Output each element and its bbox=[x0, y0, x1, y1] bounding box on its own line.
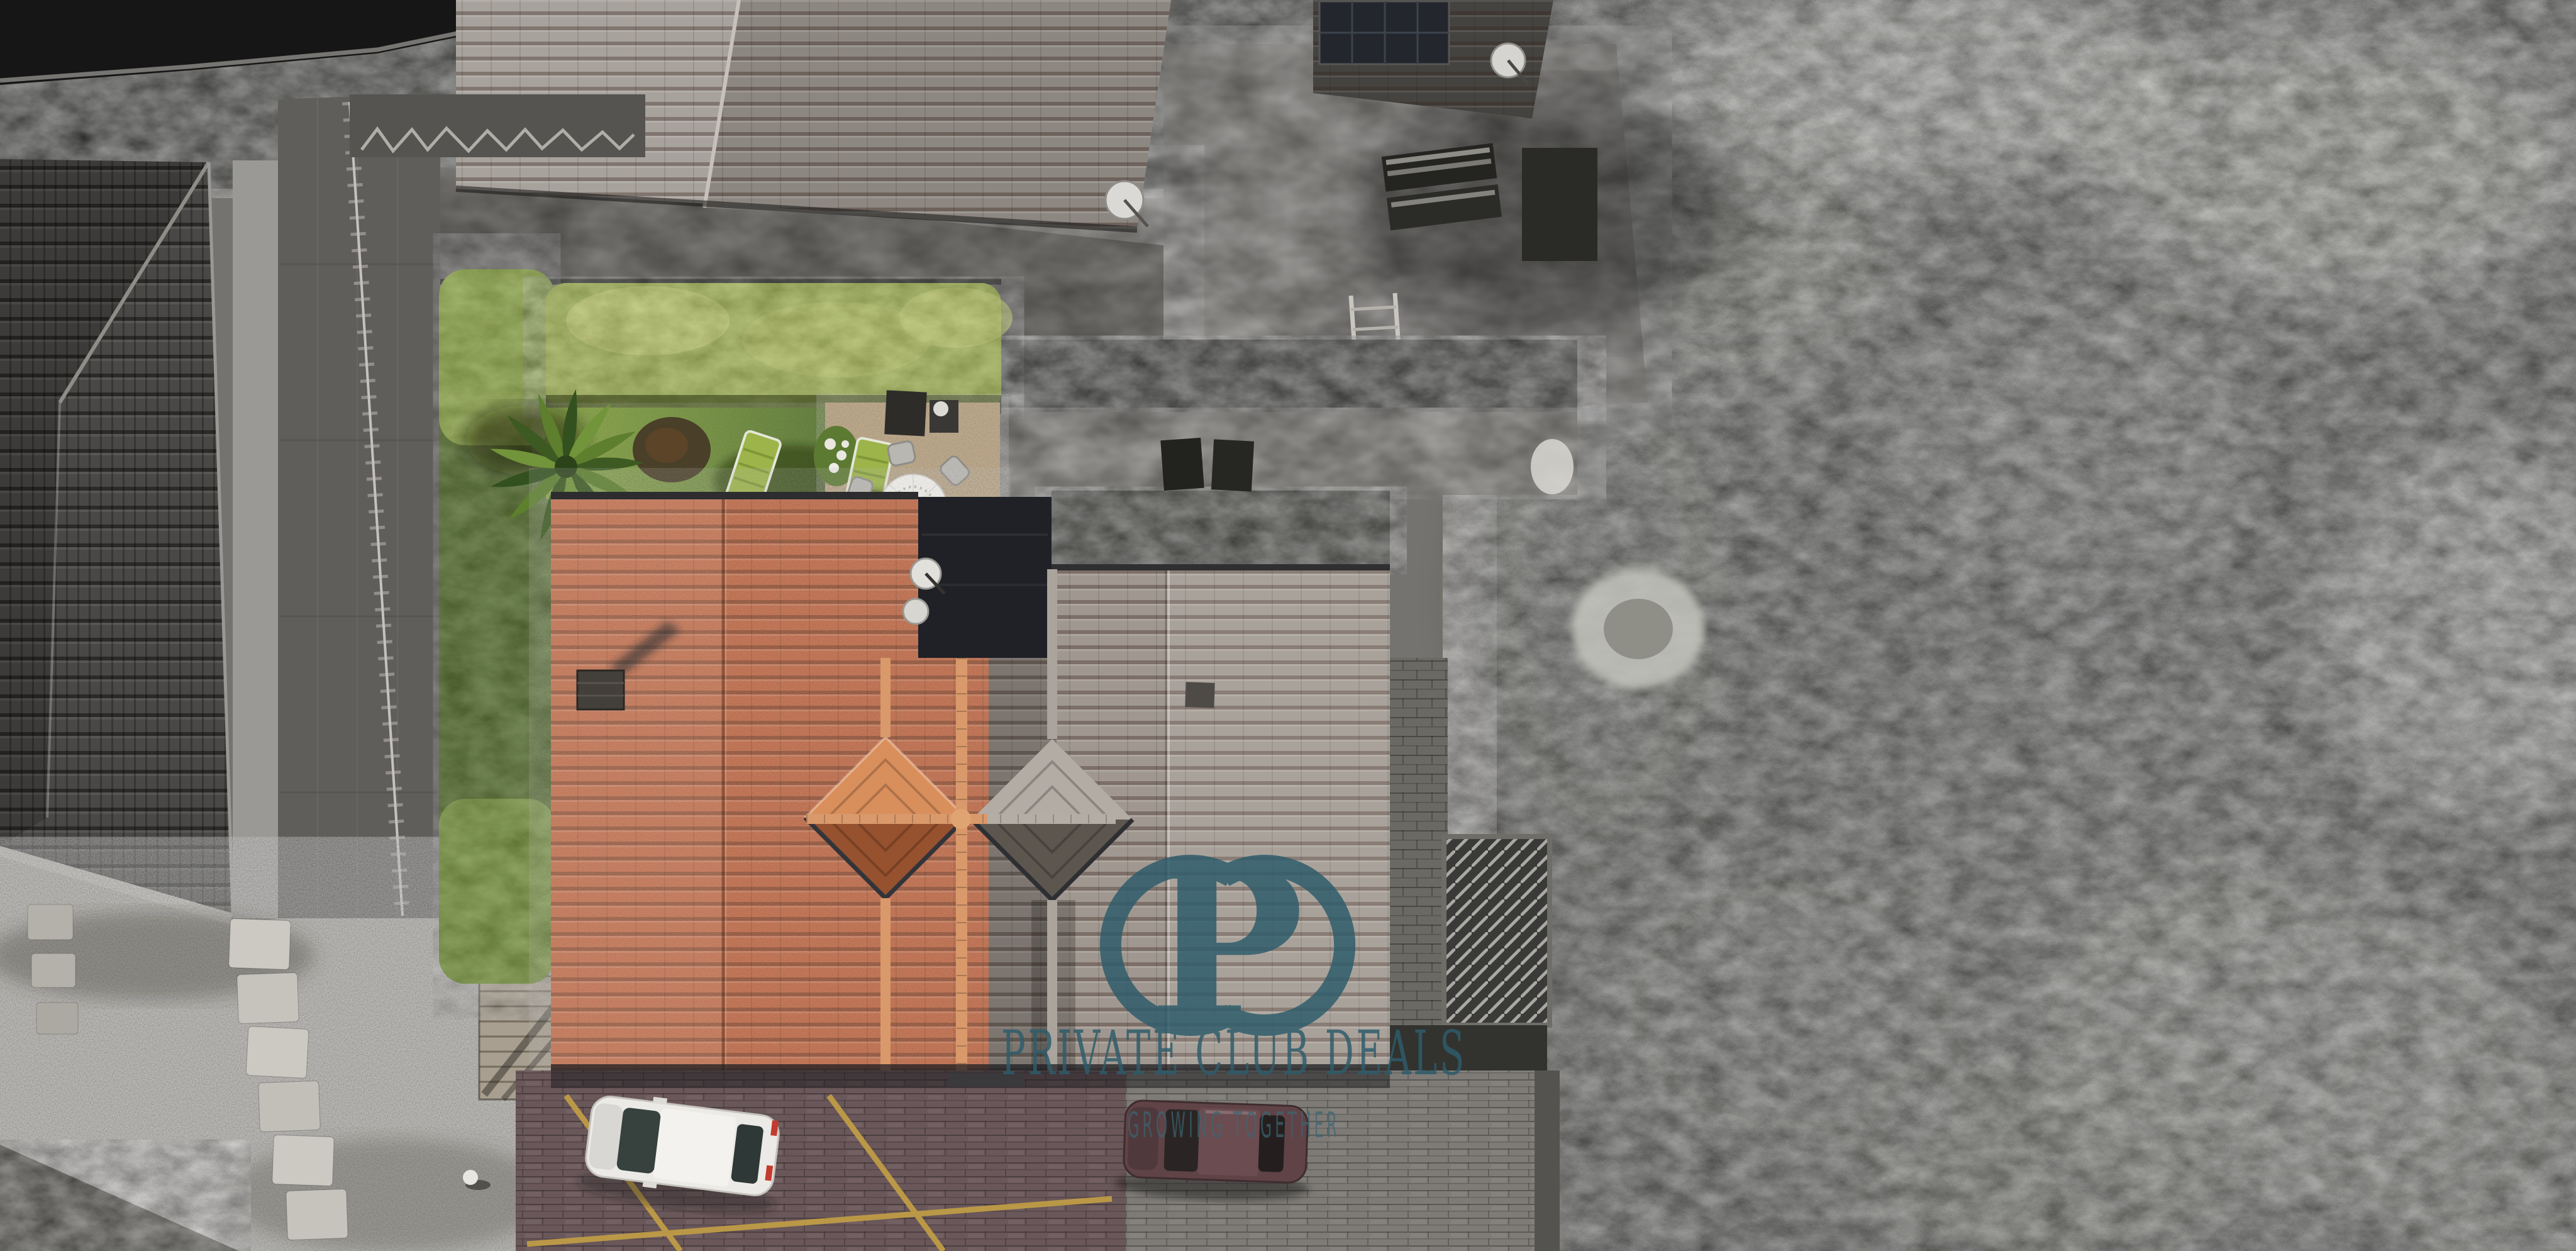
patio-furniture bbox=[1522, 148, 1597, 261]
graffiti-wall bbox=[350, 94, 645, 157]
left-roof bbox=[0, 159, 278, 926]
white-cloth bbox=[1531, 439, 1574, 494]
glass-canopy bbox=[1444, 837, 1550, 1025]
gray-palm-plant bbox=[1572, 569, 1704, 689]
watermark-line1: PRIVATE CLUB DEALS bbox=[1001, 1018, 1467, 1089]
side-path bbox=[233, 160, 278, 918]
flat-roof-section bbox=[903, 497, 1052, 658]
curb bbox=[1535, 1070, 1560, 1251]
solar-panels bbox=[1319, 1, 1449, 64]
aerial-photo-canvas: P PRIVATE CLUB DEALS GROWING TOGETHER bbox=[0, 0, 2576, 1251]
hedge-top bbox=[546, 283, 1013, 414]
hedge-left bbox=[439, 269, 555, 984]
roof-vent bbox=[1185, 682, 1214, 708]
aerial-photo: P PRIVATE CLUB DEALS GROWING TOGETHER bbox=[0, 0, 2576, 1251]
driveway bbox=[516, 1070, 1560, 1251]
dark-chair-2 bbox=[1211, 439, 1254, 491]
dark-chair bbox=[1160, 438, 1204, 491]
watermark-line2: GROWING TOGETHER bbox=[1128, 1105, 1340, 1146]
